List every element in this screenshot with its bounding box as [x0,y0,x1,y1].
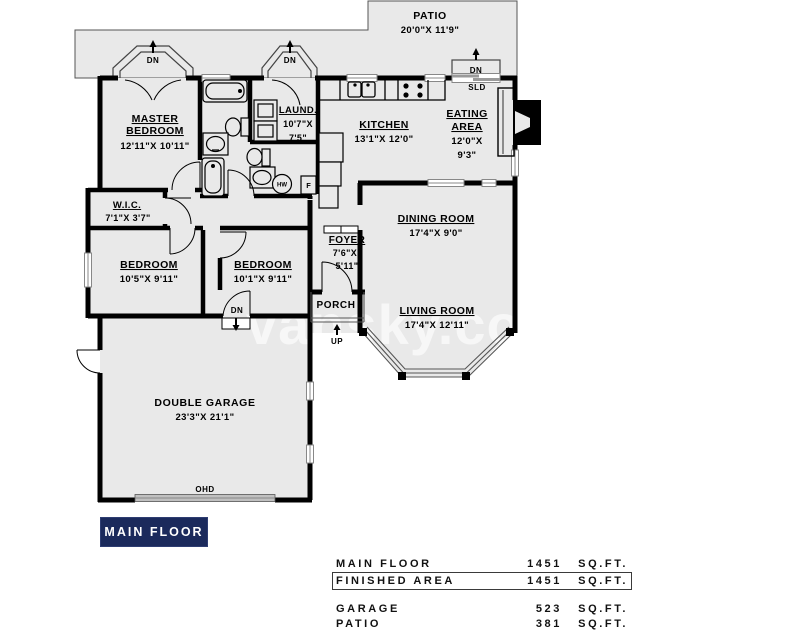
garage-step [222,318,250,331]
kitchen-label: KITCHEN [359,119,408,131]
row-label: PATIO [336,618,510,630]
bedroom-mid-label: BEDROOM [234,259,292,271]
dn-note-garage: DN [231,306,244,315]
up-note: UP [331,337,343,346]
master-dims: 12'11"X 10'11" [120,141,189,152]
floor-plan-page: PATIO 20'0"X 11'9" vansky.com DN DN DN S… [0,0,800,633]
dn-note-bay1: DN [147,56,160,65]
row-unit: SQ.FT. [562,558,628,570]
row-unit: SQ.FT. [562,575,628,587]
table-row-main-floor: MAIN FLOOR 1451 SQ.FT. [336,556,628,571]
master-line2: BEDROOM [126,125,184,137]
bedroom-left-dims: 10'5"X 9'11" [120,274,178,285]
eating-line1: EATING [446,108,487,120]
foyer-label: FOYER [329,235,366,246]
row-label: GARAGE [336,603,510,615]
patio-area: PATIO 20'0"X 11'9" [75,1,517,78]
row-value: 381 [510,618,562,630]
garage-dims: 23'3"X 21'1" [175,412,234,423]
dn-note-bay2: DN [284,56,297,65]
row-label: FINISHED AREA [336,575,510,587]
foyer-dims2: 5'11" [336,261,359,271]
overhead-door [135,495,275,502]
dining-dims: 17'4"X 9'0" [409,228,462,239]
bedroom-left-label: BEDROOM [120,259,178,271]
laundry-label: LAUND. [279,105,317,116]
row-value: 523 [510,603,562,615]
wic-dims: 7'1"X 3'7" [105,213,150,223]
table-row-finished-area: FINISHED AREA 1451 SQ.FT. [332,572,632,590]
sld-note: SLD [468,83,486,92]
eating-dims1: 12'0"X [451,136,483,147]
washer-dryer [254,100,277,141]
dining-label: DINING ROOM [398,213,475,225]
bathtub-main [202,158,224,196]
patio-dims: 20'0"X 11'9" [401,25,459,36]
master-line1: MASTER [132,113,179,125]
ohd-note: OHD [195,485,214,494]
toilet-ensuite [226,118,250,136]
row-value: 1451 [510,575,562,587]
row-unit: SQ.FT. [562,618,628,630]
toilet-main [247,149,270,167]
vanity-ensuite [203,133,228,155]
main-floor-badge-label: MAIN FLOOR [104,525,203,539]
laundry-dims2: 7'5" [289,133,307,143]
sliding-door [452,74,500,83]
table-row-garage: GARAGE 523 SQ.FT. [336,601,628,616]
eating-line2: AREA [451,121,482,133]
bathtub-top [203,80,247,102]
foyer-dims1: 7'6"X [333,248,357,258]
row-label: MAIN FLOOR [336,558,510,570]
bedroom-mid-dims: 10'1"X 9'11" [234,274,292,285]
hw-label: HW [277,183,287,189]
patio-label: PATIO [413,10,447,22]
row-value: 1451 [510,558,562,570]
living-dims: 17'4"X 12'11" [405,320,469,331]
eating-dims2: 9'3" [458,150,477,161]
area-table: MAIN FLOOR 1451 SQ.FT. FINISHED AREA 145… [336,556,628,631]
main-floor-badge: MAIN FLOOR [100,517,208,547]
laundry-dims1: 10'7"X [283,119,313,129]
vanity-main [250,167,275,188]
row-unit: SQ.FT. [562,603,628,615]
kitchen-dims: 13'1"X 12'0" [354,134,413,145]
wic-label: W.I.C. [113,200,141,211]
table-row-patio: PATIO 381 SQ.FT. [336,616,628,631]
furnace-label: F [306,181,311,190]
foyer-closet [324,226,358,233]
living-label: LIVING ROOM [400,305,475,317]
porch-label: PORCH [316,300,355,311]
garage-label: DOUBLE GARAGE [154,397,255,409]
